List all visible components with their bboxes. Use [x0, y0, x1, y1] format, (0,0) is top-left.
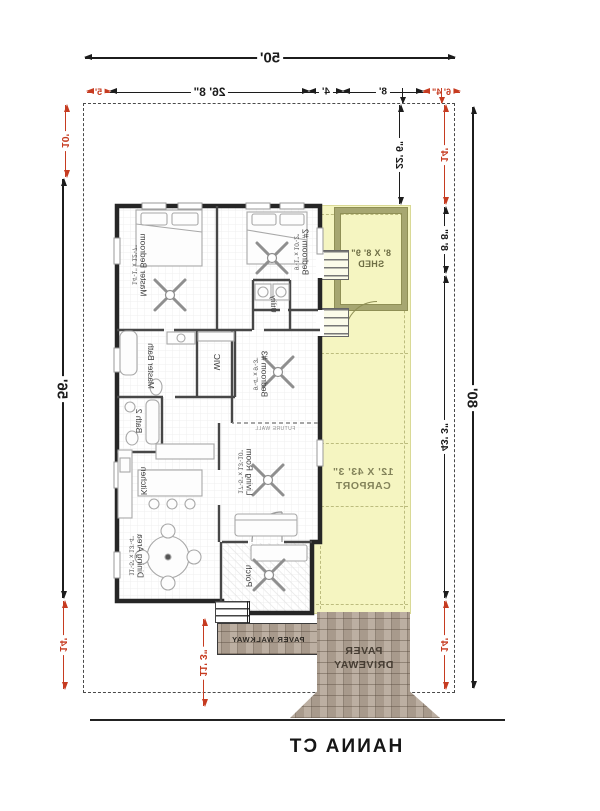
street-name-label: HANNA CT	[270, 736, 420, 758]
site-plan-sheet: 50' 6' 4" 8' 4' 26' 8" 5' 80' 22' 6" 14'…	[0, 0, 600, 811]
front-steps	[215, 601, 250, 623]
paver-walkway-label: PAVER WALKWAY	[218, 624, 318, 654]
paver-walkway: PAVER WALKWAY	[217, 623, 318, 655]
floor-plan-drawing	[0, 0, 600, 811]
street-edge-line	[90, 719, 505, 721]
dim-walkway-11-3: 11' 3"	[203, 619, 204, 706]
paver-driveway-label: PAVERDRIVEWAY	[317, 644, 410, 672]
future-wall-label: FUTURE WALL	[255, 426, 296, 432]
